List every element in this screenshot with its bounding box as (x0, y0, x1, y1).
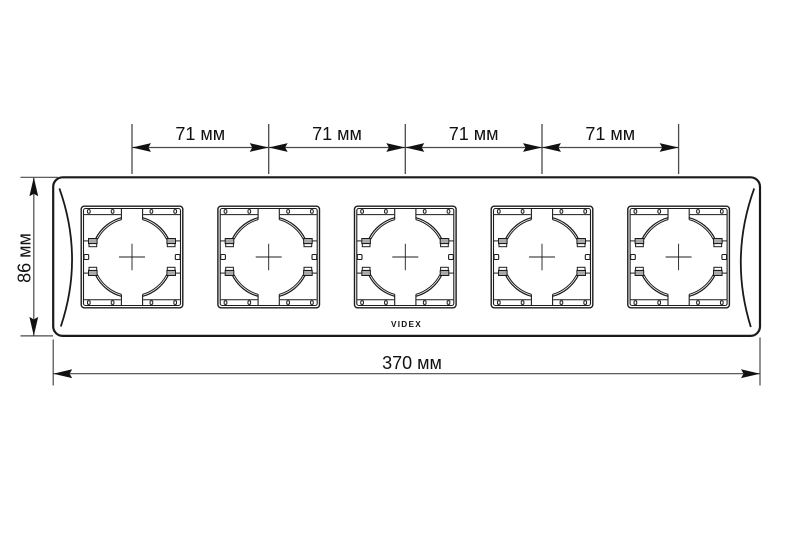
svg-text:370 мм: 370 мм (382, 353, 442, 373)
svg-text:71 мм: 71 мм (175, 124, 225, 144)
svg-text:VIDEX: VIDEX (391, 320, 422, 329)
svg-text:71 мм: 71 мм (312, 124, 362, 144)
svg-text:86 мм: 86 мм (15, 233, 35, 283)
svg-text:71 мм: 71 мм (585, 124, 635, 144)
svg-text:71 мм: 71 мм (449, 124, 499, 144)
